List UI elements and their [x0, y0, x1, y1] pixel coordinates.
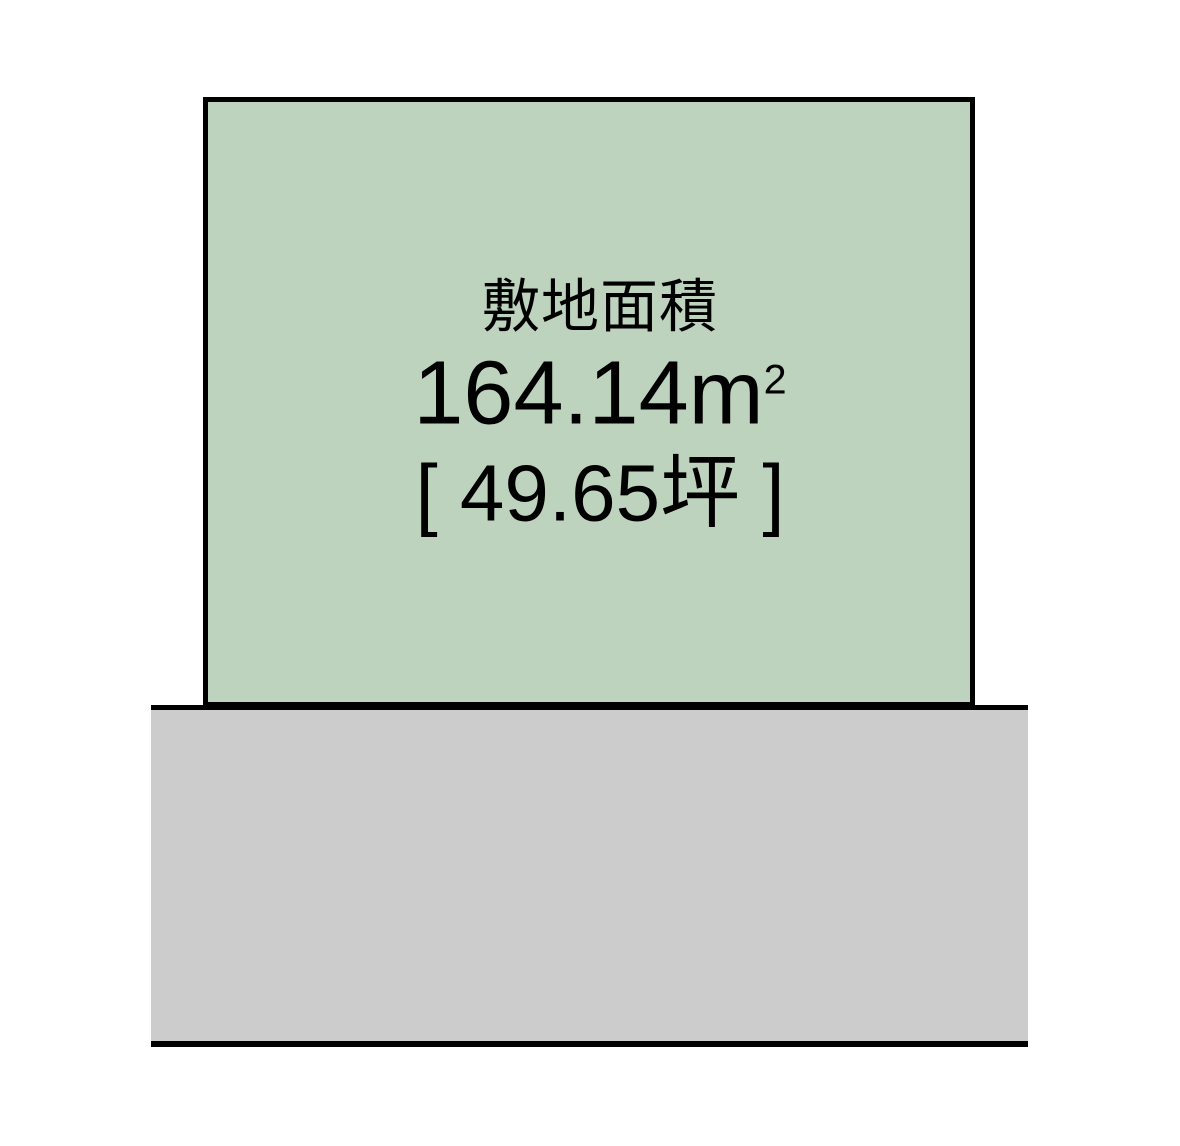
site-area-unit-exponent: 2 [764, 356, 787, 402]
site-area-number: 164.14 [413, 343, 688, 443]
site-area-value-line: 164.14m2 [413, 342, 786, 446]
site-area-unit-base: m [689, 343, 764, 443]
site-area-unit: m2 [689, 343, 787, 443]
site-area-tsubo: [ 49.65坪 ] [413, 446, 786, 542]
land-plot-diagram: 敷地面積 164.14m2 [ 49.65坪 ] [0, 0, 1180, 1146]
road-shape [151, 705, 1028, 1047]
site-area-label: 敷地面積 [413, 272, 786, 342]
land-parcel-shape: 敷地面積 164.14m2 [ 49.65坪 ] [203, 97, 975, 707]
parcel-area-text-block: 敷地面積 164.14m2 [ 49.65坪 ] [413, 272, 786, 541]
